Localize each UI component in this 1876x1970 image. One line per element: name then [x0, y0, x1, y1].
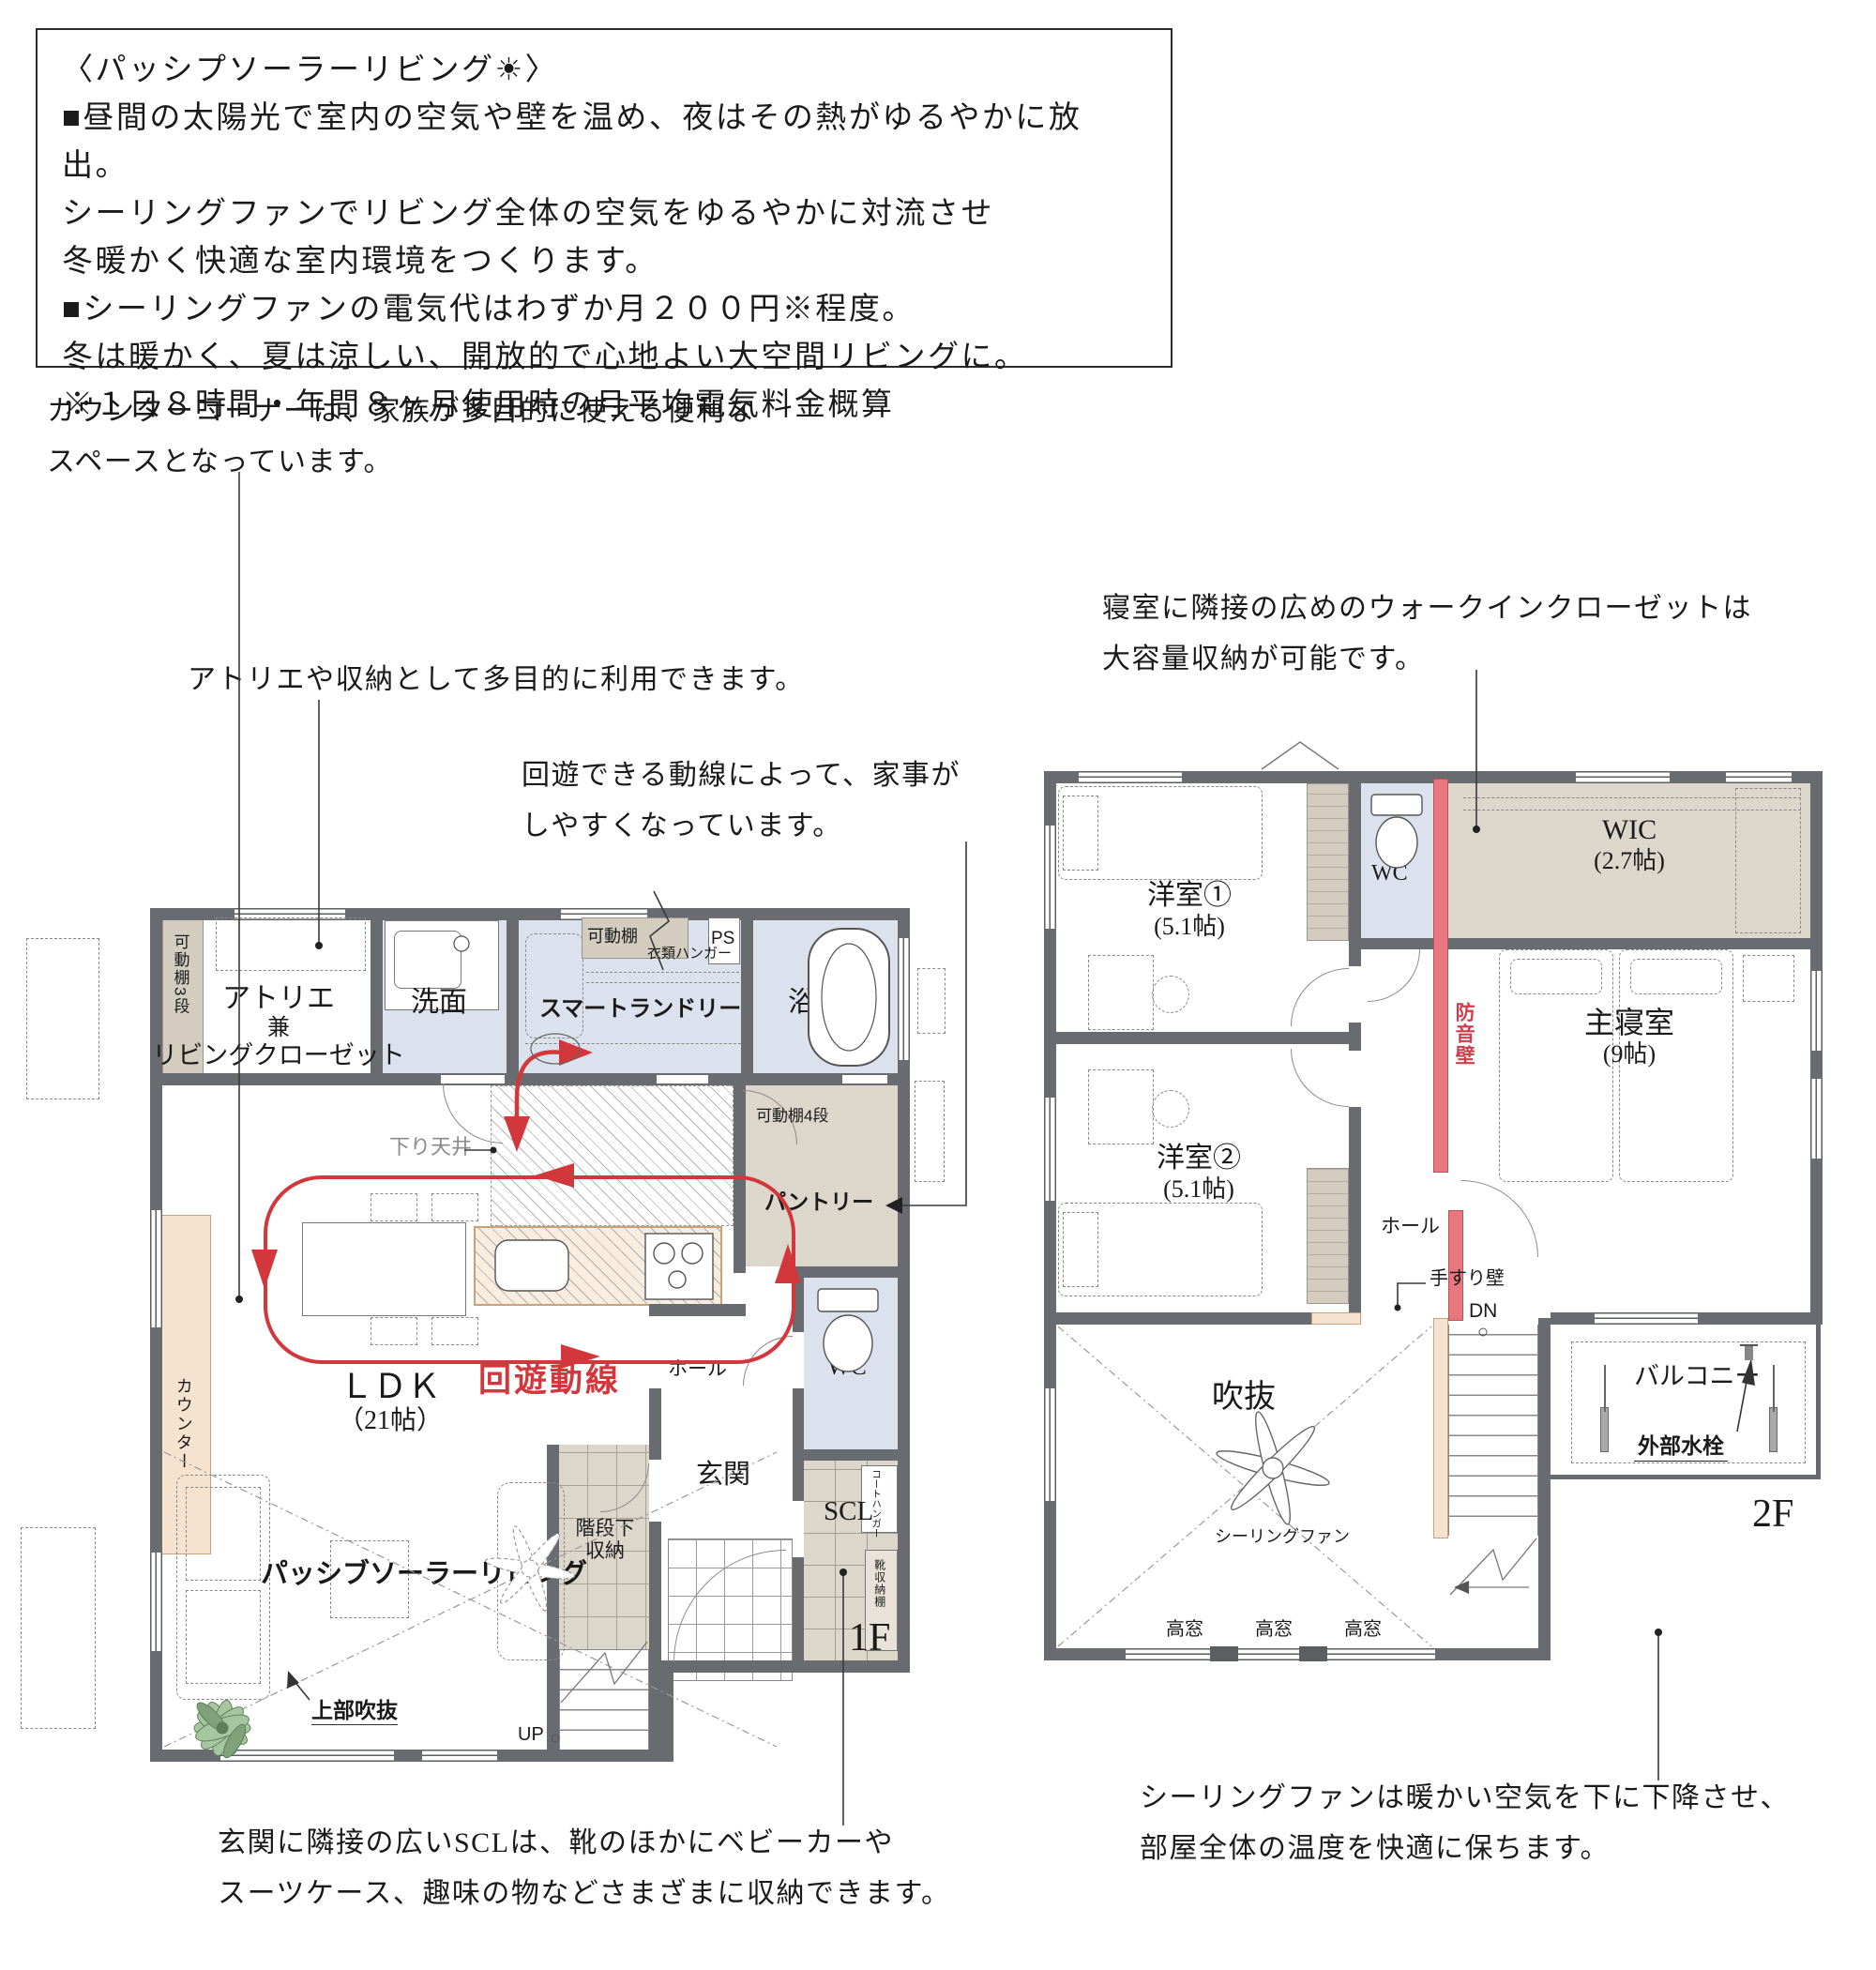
- label-shelf: 可動棚: [587, 927, 638, 947]
- handrail-wall: [1433, 1318, 1448, 1538]
- label-wc-1f: WC: [827, 1353, 867, 1381]
- label-up: UP: [518, 1724, 544, 1746]
- desk: [1088, 1069, 1154, 1144]
- label-bedroom1: 洋室① (5.1帖): [1147, 880, 1232, 940]
- window: [220, 1750, 394, 1762]
- label-shelf4: 可動棚4段: [756, 1107, 828, 1126]
- label-living: パッシブソーラーリビング: [261, 1559, 587, 1590]
- label-highwindow: 高窓: [1166, 1619, 1203, 1641]
- label-dn: DN: [1469, 1300, 1497, 1323]
- info-line-3: 冬暖かく快適な室内環境をつくります。: [62, 238, 1146, 286]
- label-shelf3: 可動棚3段: [171, 933, 189, 1015]
- label-ps: PS: [711, 929, 734, 949]
- window: [1044, 1388, 1056, 1501]
- label-washroom: 洗面: [411, 987, 467, 1020]
- label-bath: 浴室: [788, 987, 844, 1020]
- label-scl: SCL: [824, 1496, 873, 1527]
- floor2-label: 2F: [1752, 1492, 1793, 1537]
- label-wc-2f: WC: [1371, 861, 1408, 887]
- label-shoe-shelf: 靴収納棚: [872, 1559, 885, 1608]
- window: [898, 938, 910, 1060]
- stairs-1f: [559, 1649, 649, 1750]
- stair-arrow: [1454, 1581, 1469, 1594]
- void-above-arrow: [287, 1671, 310, 1700]
- label-circulation: 回遊動線: [478, 1362, 621, 1400]
- window: [1810, 971, 1823, 1051]
- window: [150, 1553, 162, 1651]
- window: [1726, 771, 1792, 783]
- label-ldk: ＬＤＫ （21帖）: [338, 1368, 443, 1437]
- ceiling-fan-2f: [1215, 1410, 1331, 1526]
- clothes-rail: [586, 972, 739, 983]
- annotation-ceiling-fan: シーリングファンは暖かい空気を下に下降させ、 部屋全体の温度を快適に保ちます。: [1140, 1773, 1790, 1874]
- info-line-2: シーリングファンでリビング全体の空気をゆるやかに対流させ: [62, 190, 1146, 238]
- door-arc: [1461, 1180, 1538, 1257]
- annotation-circulation: 回遊できる動線によって、家事が しやすくなっています。: [522, 750, 961, 852]
- info-line-1: ■昼間の太陽光で室内の空気や壁を温め、夜はその熱がゆるやかに放出。: [62, 95, 1146, 190]
- window: [1079, 771, 1182, 783]
- label-stair-storage: 階段下 収納: [576, 1518, 635, 1563]
- pillow: [1063, 1212, 1098, 1287]
- label-coat-hanger: コートハンガー: [870, 1469, 882, 1538]
- outdoor-table: [26, 938, 99, 1099]
- label-bedroom2: 洋室② (5.1帖): [1157, 1143, 1241, 1203]
- outdoor-table: [21, 1527, 96, 1729]
- window: [1576, 771, 1670, 783]
- window: [422, 1750, 497, 1762]
- sofa-cushion: [186, 1487, 261, 1581]
- nightstand: [1743, 955, 1794, 1002]
- annotation-scl: 玄関に隣接の広いSCLは、靴のほかにベビーカーや スーツケース、趣味の物などさま…: [218, 1818, 951, 1919]
- label-void-above: 上部吹抜: [311, 1698, 398, 1725]
- label-faucet: 外部水栓: [1634, 1433, 1728, 1462]
- label-wic: WIC (2.7帖): [1594, 814, 1665, 874]
- door-arc: [1291, 1049, 1349, 1107]
- window: [1044, 1098, 1056, 1201]
- chair: [1152, 976, 1189, 1013]
- annotation-wic: 寝室に隣接の広めのウォークインクローゼットは 大容量収納が可能です。: [1102, 583, 1752, 685]
- door-arc: [1368, 949, 1420, 1002]
- label-balcony: バルコニー: [1634, 1362, 1760, 1391]
- closet-bedroom1: [1307, 783, 1349, 941]
- annotation-counter: カウンターコーナーは、家族が多目的に使える便利な スペースとなっています。: [47, 386, 755, 488]
- info-line-4: ■シーリングファンの電気代はわずか月２００円※程度。: [62, 286, 1146, 334]
- pillow: [1630, 959, 1722, 994]
- floor1-label: 1F: [849, 1615, 890, 1660]
- closet-bedroom2: [1307, 1168, 1349, 1304]
- info-title: 〈パッシプソーラーリビング☀〉: [62, 47, 1146, 95]
- window: [150, 1210, 162, 1327]
- window: [1810, 1079, 1823, 1159]
- pillow: [1510, 959, 1602, 994]
- label-fan: シーリングファン: [1215, 1527, 1350, 1547]
- outdoor-bench: [917, 968, 946, 1034]
- laundry-pipe: [525, 1043, 741, 1044]
- desk: [1088, 955, 1154, 1030]
- chair: [1152, 1090, 1189, 1128]
- label-atelier: アトリエ 兼 リビングクローゼット: [152, 983, 404, 1070]
- window: [1595, 1312, 1698, 1325]
- washing-machine: [525, 933, 583, 1038]
- annotation-atelier: アトリエや収納として多目的に利用できます。: [188, 655, 805, 705]
- label-entrance: 玄関: [696, 1460, 750, 1491]
- label-highwindow: 高窓: [1255, 1619, 1293, 1641]
- highwindow-band: [1126, 1648, 1435, 1660]
- label-master: 主寝室 (9帖): [1584, 1006, 1674, 1068]
- wic-hanger-rail: [1463, 797, 1801, 811]
- label-laundry: スマートランドリー: [539, 996, 741, 1023]
- label-handrail: 手すり壁: [1430, 1268, 1505, 1290]
- label-hall-2f: ホール: [1381, 1216, 1440, 1238]
- circulation-loop: [264, 1175, 795, 1364]
- label-void: 吹抜: [1212, 1379, 1276, 1416]
- info-box: 〈パッシプソーラーリビング☀〉 ■昼間の太陽光で室内の空気や壁を温め、夜はその熱…: [36, 28, 1172, 368]
- window: [1044, 826, 1056, 929]
- label-highwindow: 高窓: [1344, 1619, 1382, 1641]
- eaves-mark: [1262, 742, 1339, 769]
- washbasin-bowl: [394, 931, 461, 989]
- sofa-cushion: [186, 1590, 261, 1684]
- atelier-desk: [216, 917, 366, 971]
- label-counter: カウンター: [174, 1377, 193, 1471]
- info-line-5: 冬は暖かく、夏は涼しい、開放的で心地よい大空間リビングに。: [62, 334, 1146, 382]
- stairs-2f: [1448, 1325, 1538, 1536]
- outdoor-bench: [915, 1081, 945, 1182]
- label-soundproof: 防音壁: [1452, 1002, 1475, 1067]
- pillow: [1063, 796, 1098, 871]
- handrail-wall: [1311, 1312, 1361, 1325]
- floorplan-page: 〈パッシプソーラーリビング☀〉 ■昼間の太陽光で室内の空気や壁を温め、夜はその熱…: [0, 0, 1876, 1970]
- soundproof-wall: [1433, 779, 1448, 1173]
- door-arc: [1291, 968, 1349, 1026]
- label-lowered-ceiling: 下り天井: [389, 1135, 472, 1159]
